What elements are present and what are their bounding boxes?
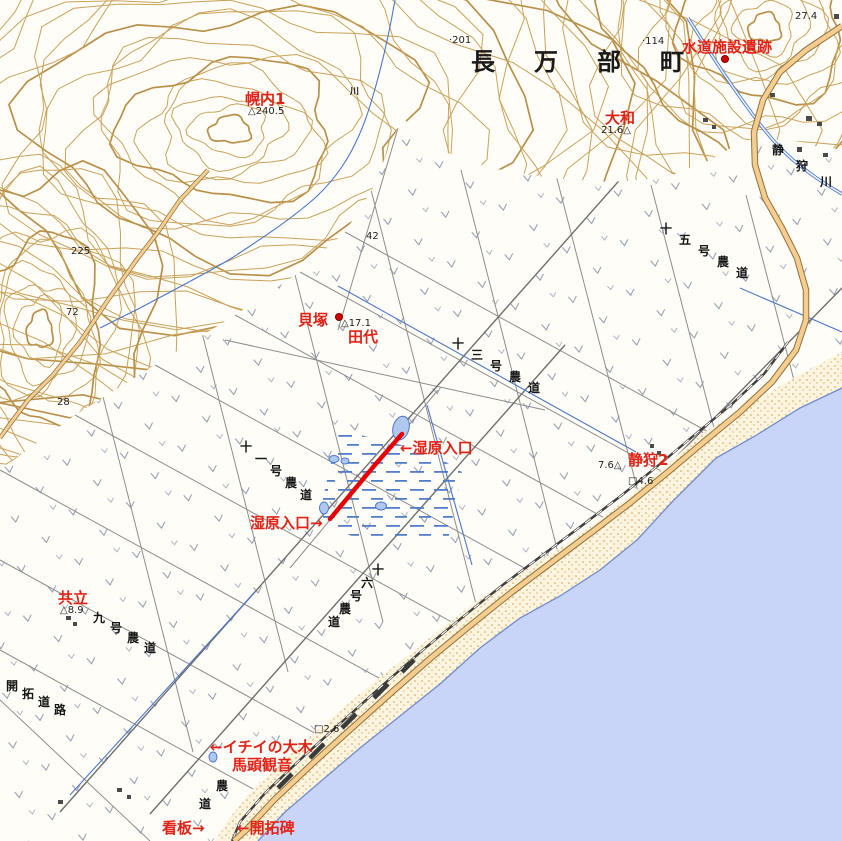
topo-map[interactable]: 水道施設遺跡幌内1大和貝塚田代←湿原入口湿原入口→静狩2共立←イチイの大木馬頭観… [0, 0, 842, 841]
map-graphics [0, 0, 842, 841]
